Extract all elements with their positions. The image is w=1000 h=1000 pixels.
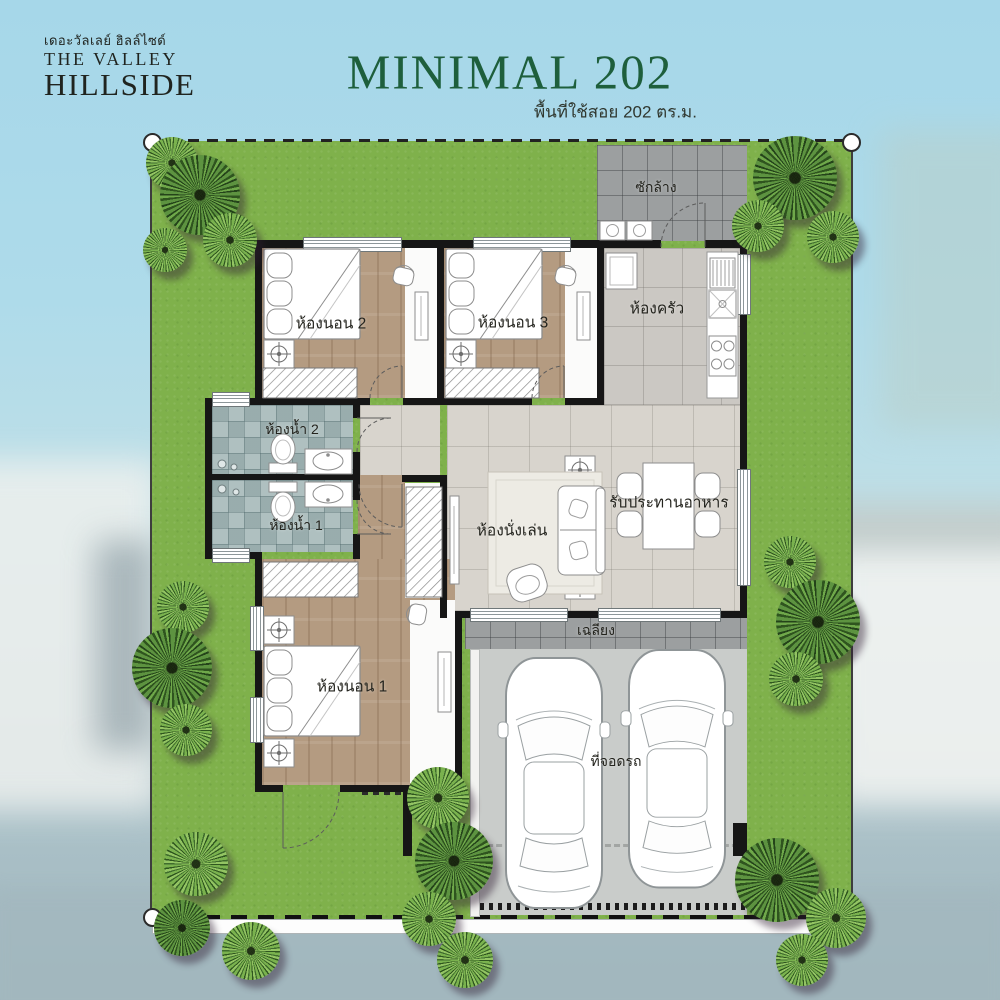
brand-name-line2: HILLSIDE [44,69,195,102]
tree-icon [776,934,828,986]
tree-icon [407,767,469,829]
plan-subtitle: พื้นที่ใช้สอย 202 ตร.ม. [534,99,697,126]
tree-icon [776,580,860,664]
bath1-label: ห้องน้ำ 1 [269,515,323,537]
tree-icon [222,922,280,980]
tree-icon [143,228,187,272]
brand-name-line1: THE VALLEY [44,50,195,69]
page-title: MINIMAL 202 [347,44,673,101]
living-label: ห้องนั่งเล่น [477,518,548,543]
bedroom2-label: ห้องนอน 2 [296,311,367,336]
tree-icon [437,932,493,988]
tree-icon [203,213,257,267]
tree-icon [154,900,210,956]
bath2-label: ห้องน้ำ 2 [265,419,319,441]
tree-icon [807,211,859,263]
laundry-label: ซักล้าง [635,177,676,199]
parking-label: ที่จอดรถ [591,751,642,773]
bedroom3-label: ห้องนอน 3 [478,310,549,335]
landscape-trees [0,0,1000,1000]
brand-thai-name: เดอะวัลเลย์ ฮิลล์ไซด์ [44,34,195,48]
tree-icon [132,628,212,708]
bedroom1-label: ห้องนอน 1 [317,674,388,699]
floor-plan-poster: ซักล้าง ห้องนอน 2 ห้องนอน 3 ห้องครัว ห้อ… [0,0,1000,1000]
dining-label: รับประทานอาหาร [609,490,728,515]
tree-icon [415,822,493,900]
tree-icon [164,832,228,896]
tree-icon [732,200,784,252]
brand-logo: เดอะวัลเลย์ ฮิลล์ไซด์ THE VALLEY HILLSID… [44,34,195,101]
tree-icon [769,652,823,706]
terrace-label: เฉลียง [577,620,615,642]
kitchen-label: ห้องครัว [630,296,685,321]
tree-icon [157,581,209,633]
tree-icon [160,704,212,756]
